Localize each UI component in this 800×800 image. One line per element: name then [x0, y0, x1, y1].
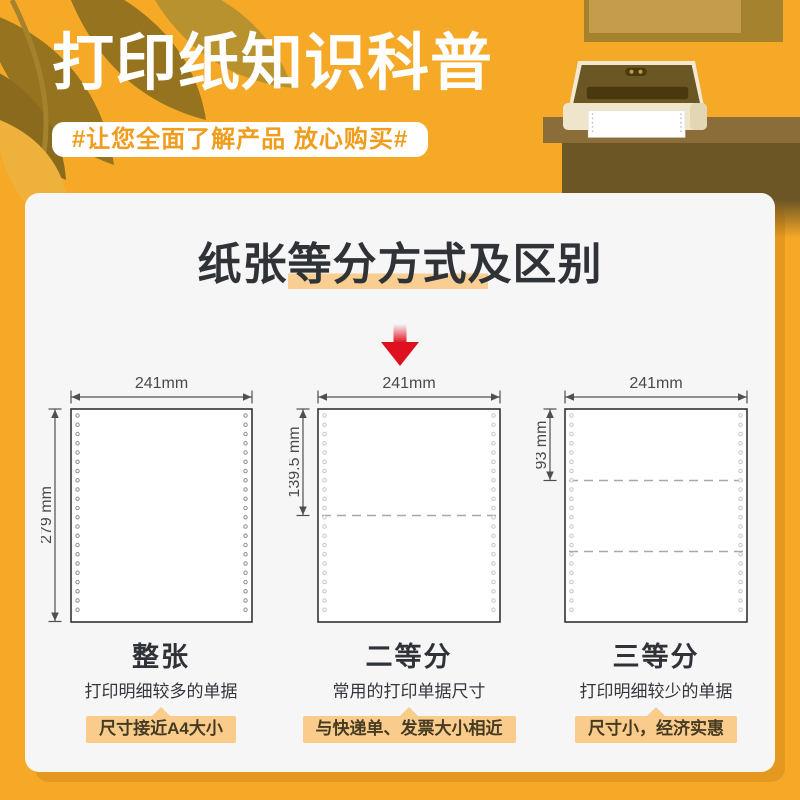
height-dimension-arrow: 279 mm [41, 409, 62, 622]
height-dimension-arrow: 139.5 mm [289, 409, 310, 516]
page-title: 打印纸知识科普 [52, 28, 493, 99]
tag-pointer [400, 707, 418, 716]
tag-pointer [647, 707, 665, 716]
paper-sheet [565, 409, 747, 622]
column-description: 打印明细较多的单据 [41, 682, 281, 702]
width-dimension-label: 241mm [382, 375, 435, 392]
height-dimension-arrow: 93 mm [536, 409, 557, 481]
column-name: 二等分 [289, 642, 529, 672]
printer-illustration [540, 55, 720, 147]
paper-diagram-whole: 241mm 279 mm [41, 373, 281, 629]
width-dimension-arrow [71, 391, 252, 404]
height-dimension-label: 279 mm [41, 486, 55, 544]
paper-diagram-bisection: 241mm 139.5 mm [289, 373, 529, 629]
tag-bubble: 尺寸小，经济实惠 [536, 707, 776, 743]
card-title-pre: 纸张 [198, 240, 288, 289]
column-whole-sheet: 241mm 279 mm [41, 373, 281, 743]
paper-columns: 241mm 279 mm [25, 373, 775, 772]
tag-label: 尺寸小，经济实惠 [575, 716, 737, 743]
picture-frame [584, 0, 783, 42]
paper-diagram-trisection: 241mm 93 mm [536, 373, 776, 629]
printer-paper [588, 111, 685, 138]
tag-label: 尺寸接近A4大小 [86, 716, 236, 743]
width-dimension-label: 241mm [629, 375, 682, 392]
card-title: 纸张等分方式及区别 [25, 240, 775, 291]
tag-bubble: 与快递单、发票大小相近 [289, 707, 529, 743]
column-description: 打印明细较少的单据 [536, 682, 776, 702]
tag-label: 与快递单、发票大小相近 [303, 716, 516, 743]
picture-frame-inner [589, 0, 741, 33]
tag-pointer [152, 707, 170, 716]
column-bisection: 241mm 139.5 mm [289, 373, 529, 743]
printer-buttons [625, 68, 646, 76]
height-dimension-label: 93 mm [536, 421, 550, 470]
subtitle-text: #让您全面了解产品 放心购买# [72, 126, 408, 153]
width-dimension-arrow [318, 391, 500, 404]
poster-page: 打印纸知识科普 #让您全面了解产品 放心购买# 纸张等分方式及区别 241mm [0, 0, 800, 800]
subtitle-pill: #让您全面了解产品 放心购买# [52, 122, 428, 157]
paper-sheet [71, 409, 252, 622]
column-name: 三等分 [536, 642, 776, 672]
down-arrow-icon [381, 324, 419, 366]
column-trisection: 241mm 93 mm [536, 373, 776, 743]
height-dimension-label: 139.5 mm [289, 426, 303, 497]
column-description: 常用的打印单据尺寸 [289, 682, 529, 702]
column-name: 整张 [41, 642, 281, 672]
info-card: 纸张等分方式及区别 241mm [25, 193, 775, 772]
printer-slot [587, 87, 689, 100]
width-dimension-arrow [565, 391, 747, 404]
card-title-highlighted: 等分方式 [288, 240, 488, 289]
width-dimension-label: 241mm [135, 375, 188, 392]
tag-bubble: 尺寸接近A4大小 [41, 707, 281, 743]
card-title-suffix: 及区别 [468, 240, 603, 289]
